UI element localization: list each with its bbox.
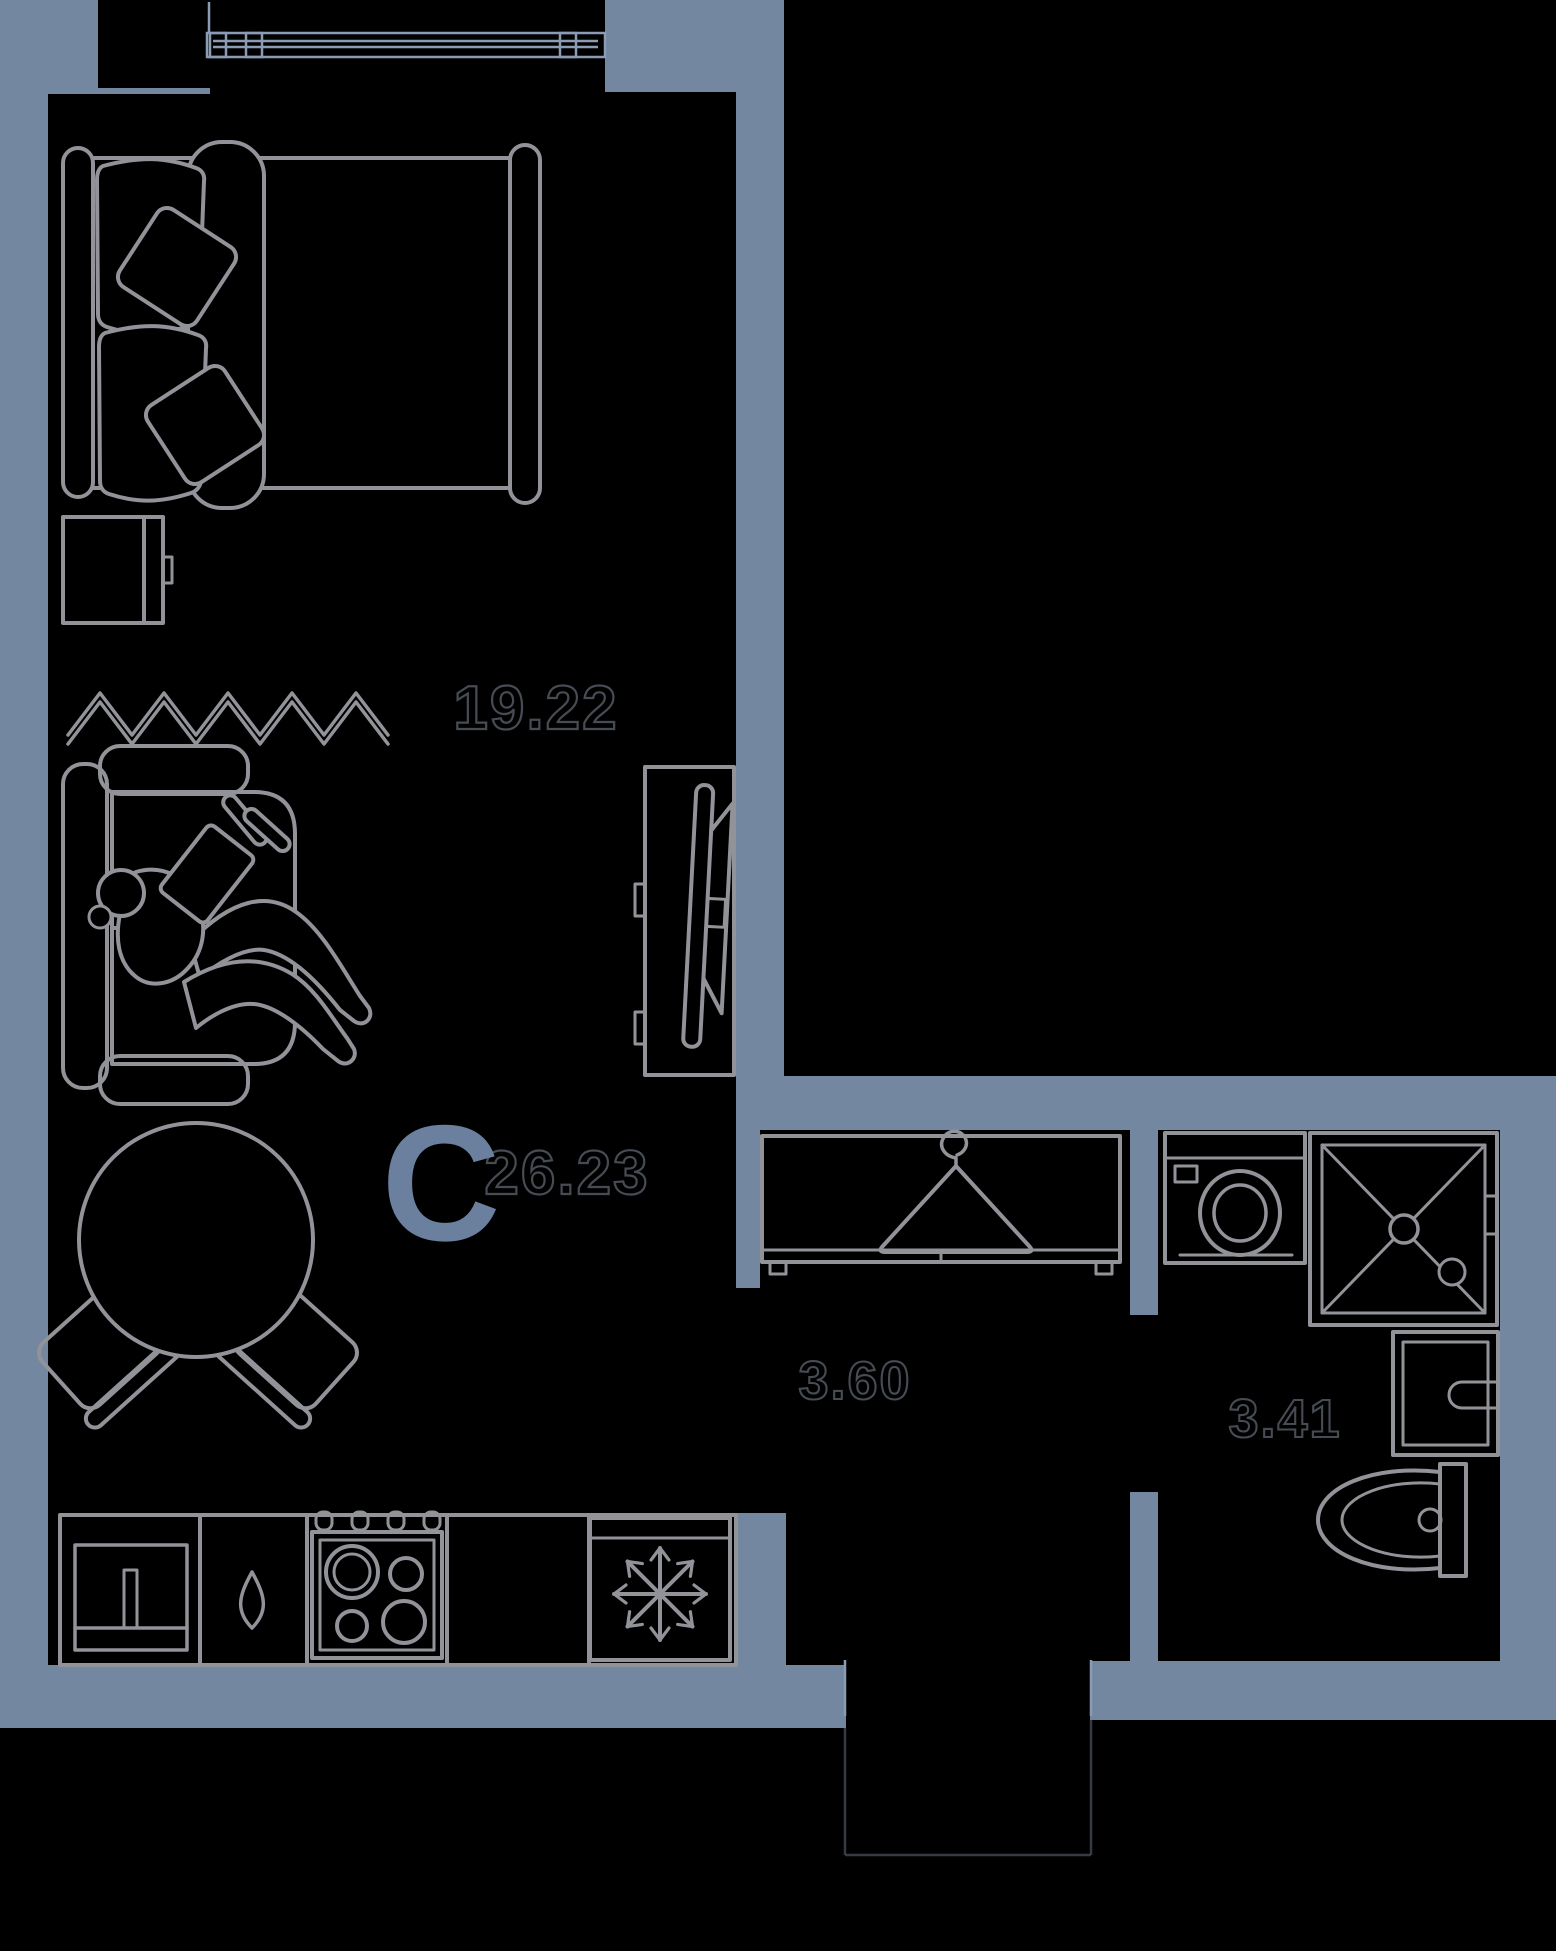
dining-table-icon [79,1123,313,1357]
living-room-area-label: 19.22 [453,674,618,743]
wall-top-left-pier [0,0,98,92]
wall-bathroom-left-lower [1130,1492,1158,1665]
floor-plan: 19.22 26.23 3.60 3.41 C [0,0,1556,1951]
wall-bathroom-left-upper [1130,1130,1158,1315]
wall-bottom-left [0,1665,846,1728]
wall-right-outer [1500,1076,1556,1720]
wall-hallway-top [736,1076,1556,1130]
wall-left [0,92,48,1728]
wall-hallway-left [736,1130,760,1288]
hallway-area-label: 3.60 [798,1351,911,1411]
wall-bottom-right [1090,1661,1556,1720]
wall-right-upper [736,92,784,1130]
wall-top-right-pier [605,0,784,92]
total-area-label: 26.23 [484,1139,649,1208]
snowflake-fridge-icon [614,1548,706,1640]
studio-type-letter: C [381,1091,500,1275]
bathroom-area-label: 3.41 [1228,1389,1341,1449]
